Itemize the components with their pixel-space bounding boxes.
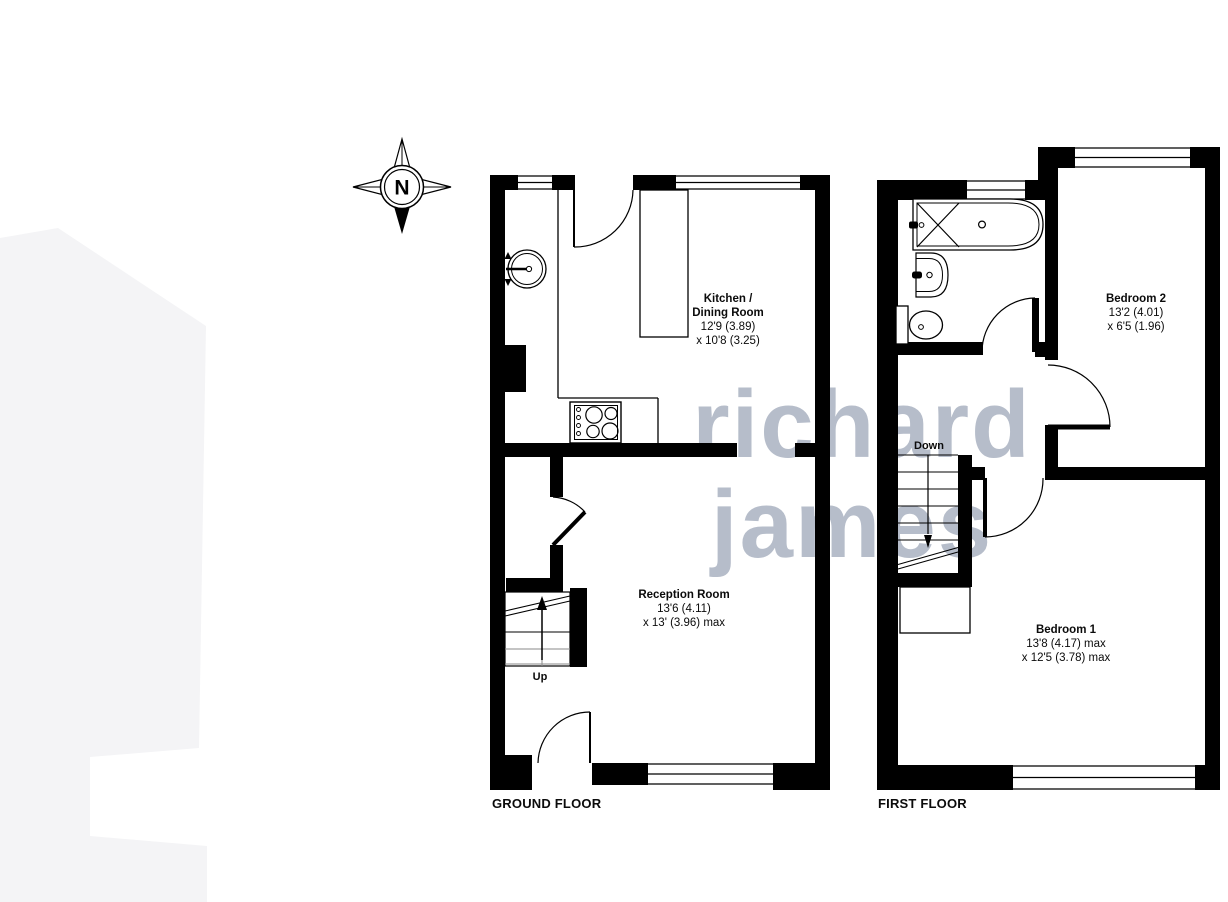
reception-window: [648, 763, 773, 785]
stairs-up-icon: [505, 592, 570, 666]
bedroom2-window: [1075, 147, 1190, 168]
front-door: [538, 712, 590, 763]
bedroom2-door: [1048, 365, 1110, 427]
kitchen-door: [574, 190, 633, 247]
kitchen-window-right: [676, 175, 800, 190]
bathroom-door: [982, 298, 1039, 352]
toilet-icon: [896, 306, 943, 344]
bathroom-window: [967, 180, 1025, 200]
cupboard: [900, 587, 970, 633]
compass-north-label: N: [394, 177, 409, 200]
kitchen-sink-icon: [505, 250, 547, 288]
compass-icon: N: [353, 139, 451, 234]
kitchen-island-counter: [640, 190, 688, 337]
first-floor-plan: [877, 147, 1220, 790]
sink-icon: [912, 253, 948, 297]
reception-door: [553, 497, 585, 545]
floorplan-page: richard james N: [0, 0, 1228, 902]
kitchen-window-left: [518, 175, 552, 190]
bedroom1-window: [1013, 765, 1195, 790]
stairs-down-icon: [898, 455, 958, 569]
hob-icon: [570, 402, 621, 443]
bath-icon: [909, 199, 1043, 250]
ground-floor-plan: [490, 175, 830, 790]
floorplan-drawing: N: [0, 0, 1228, 902]
bedroom1-door: [985, 478, 1043, 537]
